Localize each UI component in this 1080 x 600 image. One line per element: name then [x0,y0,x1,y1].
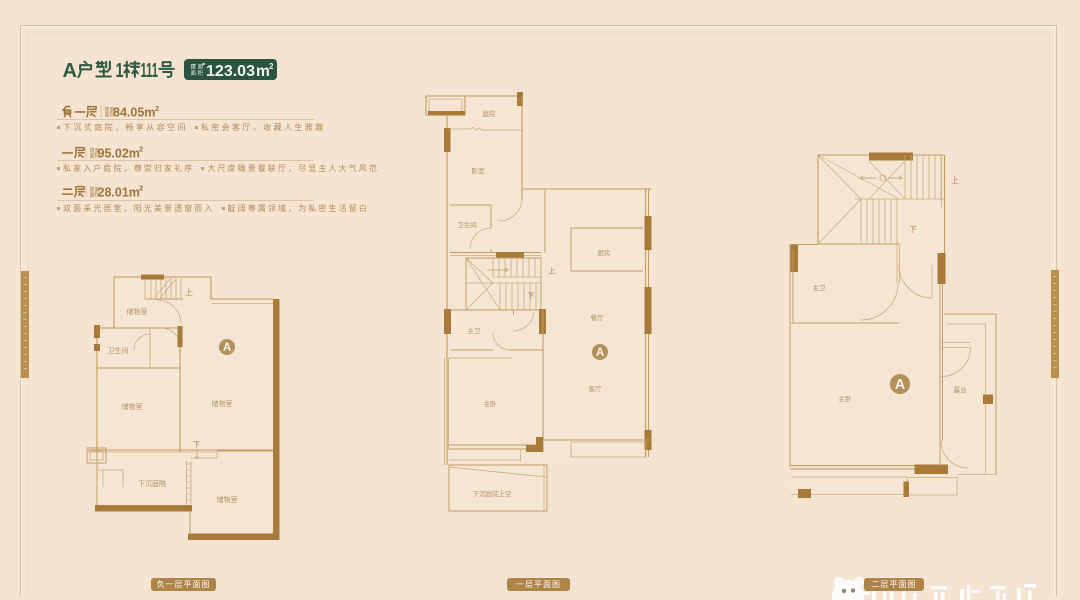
svg-text:A: A [596,346,605,359]
svg-text:下沉庭院上空: 下沉庭院上空 [473,489,513,498]
svg-text:下: 下 [909,225,917,234]
svg-text:储物室: 储物室 [217,495,238,504]
svg-text:主卫: 主卫 [468,326,482,335]
svg-text:A: A [895,377,906,393]
svg-text:主卧: 主卧 [484,399,498,408]
svg-text:储物室: 储物室 [127,307,148,316]
svg-text:卫生间: 卫生间 [457,220,477,229]
svg-text:客厅: 客厅 [589,384,603,393]
svg-text:下沉庭院: 下沉庭院 [138,479,166,488]
svg-text:下: 下 [527,292,535,301]
svg-text:下: 下 [193,440,201,449]
svg-text:主卧: 主卧 [839,394,853,403]
svg-text:A: A [223,341,232,354]
svg-text:储物室: 储物室 [122,402,143,411]
svg-text:储物室: 储物室 [212,399,233,408]
svg-text:庭院: 庭院 [483,109,497,118]
svg-text:上: 上 [185,288,193,297]
svg-text:厨房: 厨房 [598,248,611,257]
svg-text:上: 上 [548,267,556,276]
svg-text:餐厅: 餐厅 [591,313,605,322]
svg-text:上: 上 [951,176,959,185]
svg-text:主卫: 主卫 [813,283,827,292]
svg-text:露台: 露台 [954,385,967,394]
svg-text:卧室: 卧室 [472,166,486,175]
svg-text:卫生间: 卫生间 [108,346,129,355]
